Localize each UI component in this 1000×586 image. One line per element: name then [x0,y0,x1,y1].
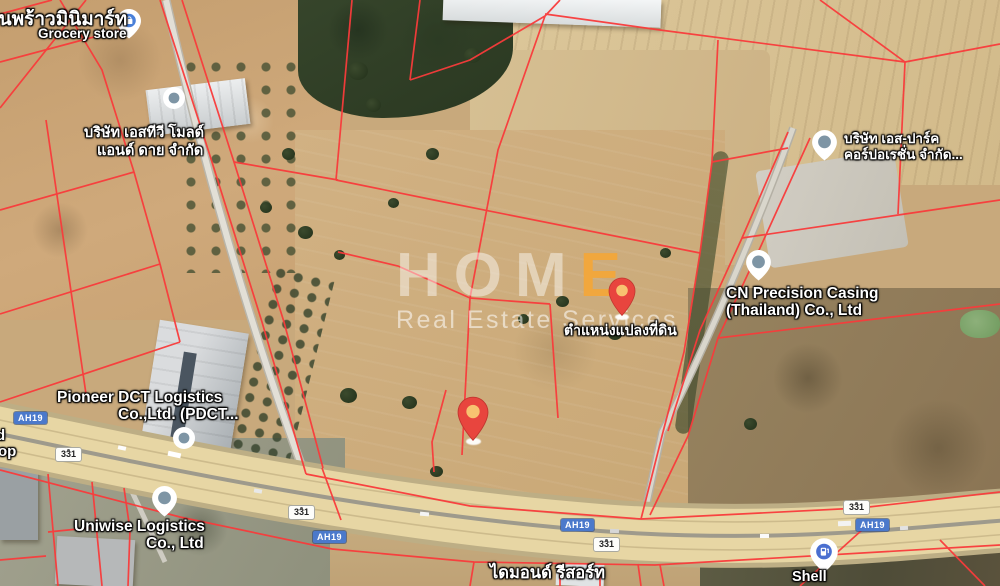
plot-position-label: ตำแหน่งแปลงที่ดิน [564,320,677,342]
poi-label-uniwise-line1[interactable]: Uniwise Logistics [74,518,205,536]
plot-marker-icon[interactable] [455,396,491,442]
poi-label-spark-line2[interactable]: คอร์ปอเรชั่น จำกัด... [844,143,963,165]
poi-pin-icon[interactable] [745,249,772,281]
route-badge-ah19: AH19 [313,531,346,543]
poi-label-shell[interactable]: Shell [792,569,827,585]
satellite-map[interactable]: HOME Real Estate Services านพร้าวมินิมาร… [0,0,1000,586]
edge-partial-label-1: d [0,427,5,444]
poi-label-uniwise-line2[interactable]: Co., Ltd [146,535,204,553]
poi-label-pioneer-line2[interactable]: Co.,Ltd. (PDCT... [118,406,239,424]
poi-label-resort[interactable]: ไดมอนด์ รีสอร์ท [490,560,605,586]
route-badge-ah19: AH19 [14,412,47,424]
poi-dot-icon[interactable] [172,426,196,450]
route-badge-331: 331 [593,537,620,552]
fuel-station-pin-icon[interactable] [809,537,839,573]
route-badge-ah19: AH19 [856,519,889,531]
poi-label-pioneer-line1[interactable]: Pioneer DCT Logistics [57,389,222,407]
route-badge-ah19: AH19 [561,519,594,531]
edge-partial-label-2: op [0,443,16,460]
poi-label-cn-line1[interactable]: CN Precision Casing [726,285,878,303]
poi-dot-icon[interactable] [162,86,186,110]
route-badge-331: 331 [288,505,315,520]
route-badge-331: 331 [843,500,870,515]
poi-label-grocery[interactable]: Grocery store [38,26,127,41]
poi-pin-icon[interactable] [151,485,178,517]
poi-pin-icon[interactable] [811,129,838,161]
poi-label-cn-line2[interactable]: (Thailand) Co., Ltd [726,302,862,320]
plot-marker-icon[interactable] [607,277,637,317]
poi-label-stv-line2[interactable]: แอนด์ ดาย จำกัด [97,139,203,162]
route-badge-331: 331 [55,447,82,462]
